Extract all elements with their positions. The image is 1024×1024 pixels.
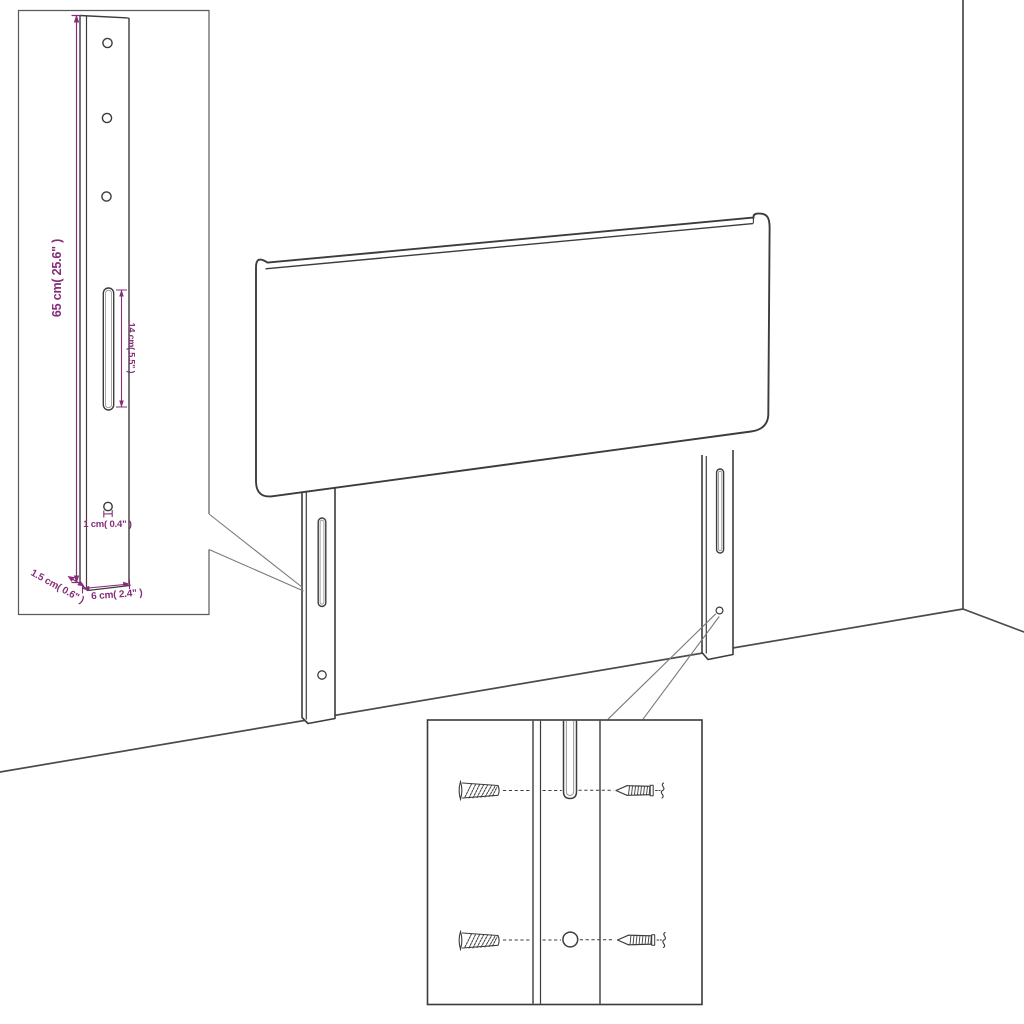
callout-lines — [209, 514, 719, 719]
right-leg — [702, 450, 733, 660]
right-leg-slot — [717, 469, 724, 553]
mounting-detail-inset — [428, 720, 703, 1005]
diagram-canvas: 65 cm( 25.6" ) 14 cm( 5.5" ) 1 cm( 0.4" … — [0, 0, 1024, 1024]
left-inset-callout-line-upper — [209, 514, 303, 588]
slot-dimension-label: 14 cm( 5.5" ) — [127, 323, 137, 374]
mounting-detail-background — [428, 720, 703, 1005]
headboard-outline — [256, 214, 770, 497]
left-leg-slot — [318, 518, 326, 607]
headboard-assembly-diagram: 65 cm( 25.6" ) 14 cm( 5.5" ) 1 cm( 0.4" … — [0, 0, 1024, 1024]
height-dimension-label: 65 cm( 25.6" ) — [50, 239, 64, 317]
left-leg — [302, 462, 335, 724]
hole-dimension-label: 1 cm( 0.4" ) — [83, 519, 132, 530]
floor-line-right — [963, 609, 1024, 632]
leg-detail-inset: 65 cm( 25.6" ) 14 cm( 5.5" ) 1 cm( 0.4" … — [19, 11, 210, 615]
right-leg-hole — [716, 607, 723, 614]
bottom-inset-callout-line-right — [643, 617, 719, 720]
headboard — [256, 214, 770, 497]
left-leg-hole — [318, 671, 326, 679]
left-inset-callout-line-lower — [209, 550, 304, 592]
